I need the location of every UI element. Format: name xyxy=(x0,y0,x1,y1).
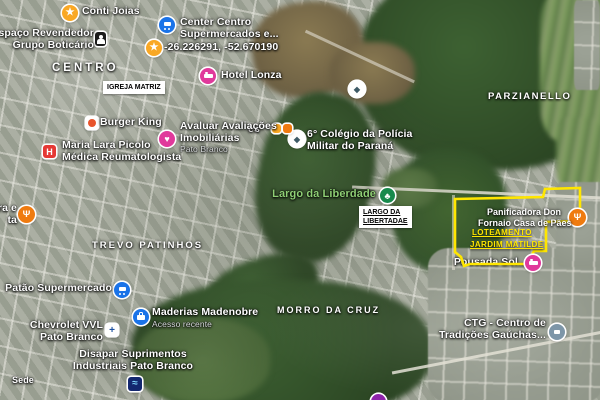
label-line: Hotel Lonza xyxy=(221,70,282,82)
label-line: ta xyxy=(0,215,17,227)
bowtie-glyph: + xyxy=(109,325,115,336)
label-line: Chevrolet VVL xyxy=(30,320,103,332)
label-line: Patão Supermercado xyxy=(5,283,112,295)
restaurant-icon[interactable]: Ψ xyxy=(18,206,35,223)
poi-label-hotel-lonza[interactable]: Hotel Lonza xyxy=(221,70,282,82)
label-subtitle: Acesso recente xyxy=(152,319,258,329)
hospital-icon[interactable]: H xyxy=(43,145,56,158)
briefcase-glyph xyxy=(137,315,145,321)
star-glyph: ★ xyxy=(66,7,75,18)
poi-label-left-restaurant[interactable]: ra e ta xyxy=(0,203,17,226)
poi-label-patao[interactable]: Patão Supermercado xyxy=(5,283,112,295)
cart-glyph xyxy=(119,287,126,292)
person-icon[interactable] xyxy=(95,32,106,46)
poi-label-ctg[interactable]: CTG - Centro de Tradições Gaúchas... xyxy=(439,318,546,341)
label-line: Largo da Liberdade xyxy=(272,189,376,201)
burger-glyph xyxy=(88,119,96,127)
poi-icon-ctg[interactable] xyxy=(549,324,565,340)
label-line: Espaço Revendedor xyxy=(0,28,94,40)
chevrolet-logo-icon[interactable]: + xyxy=(106,324,118,336)
suburb-patch xyxy=(574,0,600,90)
cap-glyph: ◆ xyxy=(354,85,360,94)
poi-icon-partial[interactable] xyxy=(283,124,292,133)
region-label-parzianello: PARZIANELLO xyxy=(488,91,571,102)
fork-glyph: Ψ xyxy=(574,212,582,223)
label-line: Grupo Boticário xyxy=(0,40,94,52)
person-glyph xyxy=(99,35,103,39)
annotation-igreja-matriz: IGREJA MATRIZ xyxy=(103,81,165,94)
label-line: Médica Reumatologista xyxy=(62,152,181,164)
star-glyph: ★ xyxy=(150,42,159,53)
region-label-trevo-patinhos: TREVO PATINHOS xyxy=(92,240,203,251)
graduation-cap-icon[interactable]: ◆ xyxy=(289,131,305,147)
label-line: Conti Joias xyxy=(82,6,140,18)
bed-glyph xyxy=(204,74,213,78)
label-line: ra e xyxy=(0,203,17,215)
label-line: Imobiliárias xyxy=(180,133,277,145)
label-line: Tradições Gaúchas... xyxy=(439,330,546,342)
poi-label-pousada[interactable]: Pousada Sol... xyxy=(454,257,527,269)
label-line: Burger King xyxy=(100,117,162,129)
poi-glyph xyxy=(554,330,560,335)
poi-label-avaluar[interactable]: Avaluar Avaliações Imobiliárias Pato Bra… xyxy=(180,121,277,154)
region-label-centro: CENTRO xyxy=(52,62,119,74)
cart-glyph xyxy=(164,22,171,27)
label-line: Avaluar Avaliações xyxy=(180,121,277,133)
poi-label-center-centro[interactable]: Center Centro Supermercados e... xyxy=(180,17,279,40)
label-line: CTG - Centro de xyxy=(439,318,546,330)
label-line: Disapar Suprimentos xyxy=(73,349,193,361)
poi-label-disapar[interactable]: Disapar Suprimentos Industriais Pato Bra… xyxy=(73,349,193,372)
poi-label-grupo-boticario[interactable]: Espaço Revendedor Grupo Boticário xyxy=(0,28,94,51)
annotation-text: LARGO DA xyxy=(363,208,408,217)
label-subtitle: Pato Branco xyxy=(180,144,277,154)
wave-icon[interactable]: ≈ xyxy=(128,377,142,391)
bed-icon[interactable] xyxy=(200,68,216,84)
star-icon[interactable]: ★ xyxy=(62,5,78,21)
annotation-text: IGREJA MATRIZ xyxy=(107,83,161,92)
label-line: Center Centro xyxy=(180,17,279,29)
field-patch xyxy=(556,118,600,188)
cap-glyph: ◆ xyxy=(294,135,300,144)
graduation-cap-icon[interactable]: ◆ xyxy=(349,81,365,97)
poi-label-colegio-policia[interactable]: 6° Colégio da Polícia Militar do Paraná xyxy=(307,129,413,152)
label-line: Supermercados e... xyxy=(180,29,279,41)
tree-glyph: ♣ xyxy=(385,191,391,201)
label-line: Fornaio Casa de Pães xyxy=(478,218,570,229)
bed-glyph xyxy=(529,261,538,265)
annotation-largo-da-libertadae: LARGO DA LIBERTADAE xyxy=(359,206,412,228)
label-line: Pousada Sol... xyxy=(454,257,527,269)
annotation-text: LIBERTADAE xyxy=(363,217,408,226)
fork-glyph: Ψ xyxy=(23,209,31,220)
label-line: Maria Lara Picolo xyxy=(62,140,181,152)
dropped-pin-star-icon[interactable]: ★ xyxy=(146,40,162,56)
bed-icon[interactable] xyxy=(525,255,541,271)
label-line: Panificadora Don xyxy=(478,207,570,218)
region-label-sede: Sede xyxy=(12,375,34,387)
label-line: Pato Branco xyxy=(30,332,103,344)
map-canvas[interactable]: Pousada Sol... CENTRO PARZIANELLO TREVO … xyxy=(0,0,600,400)
shopping-cart-icon[interactable] xyxy=(159,17,175,33)
poi-label-largo-liberdade[interactable]: Largo da Liberdade xyxy=(272,189,376,201)
region-label-morro-da-cruz: MORRO DA CRUZ xyxy=(277,305,380,315)
panificadora-label: Panificadora Don Fornaio Casa de Pães xyxy=(478,207,570,228)
poi-label-burger-king[interactable]: Burger King xyxy=(100,117,162,129)
loteamento-label-line1: LOTEAMENTO xyxy=(472,228,532,238)
label-line: -26.226291, -52.670190 xyxy=(164,42,278,54)
label-line: 6° Colégio da Polícia xyxy=(307,129,413,141)
poi-label-dropped-pin[interactable]: -26.226291, -52.670190 xyxy=(164,42,278,54)
poi-label-conti-joias[interactable]: Conti Joias xyxy=(82,6,140,18)
shopping-cart-icon[interactable] xyxy=(114,282,130,298)
poi-label-maria-lara[interactable]: Maria Lara Picolo Médica Reumatologista xyxy=(62,140,181,163)
label-line: Militar do Paraná xyxy=(307,141,413,153)
burger-king-logo-icon[interactable] xyxy=(86,117,98,129)
poi-label-madenobre[interactable]: Maderias Madenobre Acesso recente xyxy=(152,307,258,329)
label-line: Industriais Pato Branco xyxy=(73,361,193,373)
wave-glyph: ≈ xyxy=(132,378,138,389)
label-line: Maderias Madenobre xyxy=(152,307,258,319)
tree-icon[interactable]: ♣ xyxy=(380,188,395,203)
poi-label-chevrolet[interactable]: Chevrolet VVL Pato Branco xyxy=(30,320,103,343)
briefcase-icon[interactable] xyxy=(133,309,149,325)
field-patch xyxy=(330,42,415,104)
loteamento-label-line2: JARDIM MATILDE xyxy=(470,240,543,250)
